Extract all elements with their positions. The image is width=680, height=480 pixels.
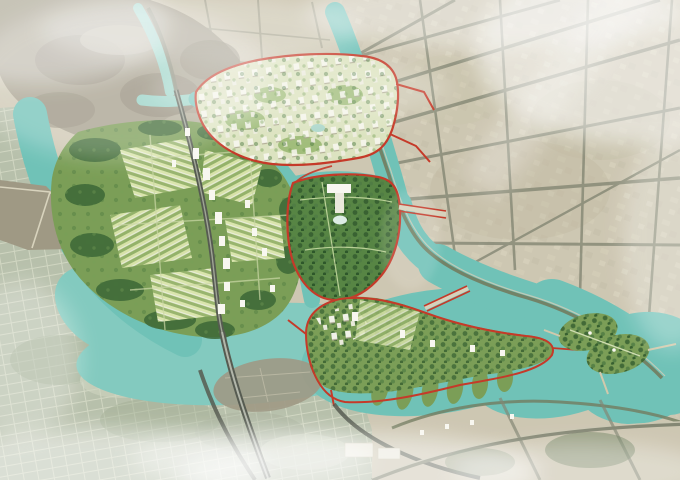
- global-haze-wash: [0, 0, 680, 480]
- masterplan-svg: [0, 0, 680, 480]
- masterplan-aerial-image: [0, 0, 680, 480]
- haze-clouds: [0, 0, 680, 480]
